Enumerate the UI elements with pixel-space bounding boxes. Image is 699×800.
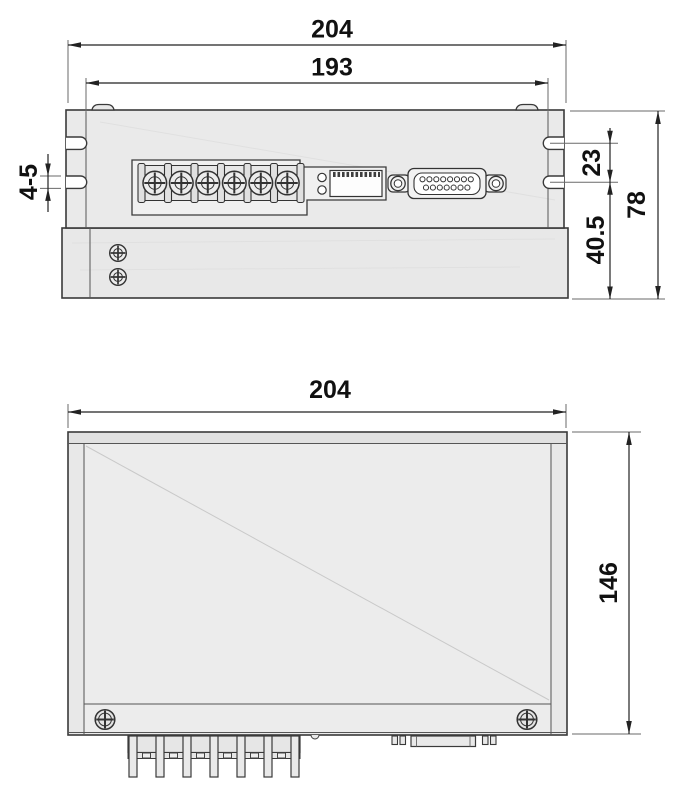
- terminal-foot: [251, 753, 259, 758]
- dim-label-4-5: 4-5: [15, 164, 43, 200]
- mounting-slot-left-lower: [66, 176, 87, 188]
- dim-slot-width: 4-5: [15, 154, 61, 212]
- dip-led-hole: [318, 186, 326, 194]
- dim-label-23: 23: [578, 149, 606, 177]
- dip-led-hole: [318, 173, 326, 181]
- db15-shell-profile: [411, 736, 476, 747]
- terminal-foot: [278, 753, 286, 758]
- terminal-foot: [143, 753, 151, 758]
- dim-mount-width: 193: [86, 54, 548, 113]
- dim-label-193: 193: [311, 54, 353, 82]
- terminal-leg: [264, 736, 272, 777]
- top-view: 204 193 4-5 23: [15, 16, 665, 300]
- terminal-leg: [183, 736, 191, 777]
- top-edge-bump-right: [516, 105, 538, 111]
- db15-jackscrew-right-hole: [492, 180, 500, 188]
- technical-drawing: 204 193 4-5 23: [0, 0, 699, 800]
- top-edge-bump-left: [92, 105, 114, 111]
- front-view-top-strip: [69, 433, 566, 443]
- db15-tab: [392, 736, 398, 745]
- terminal-leg: [129, 736, 137, 777]
- dim-overall-width-front: 204: [68, 376, 566, 428]
- dim-label-146: 146: [595, 562, 623, 604]
- dim-label-204-top: 204: [311, 16, 353, 44]
- dim-overall-height: 78: [623, 111, 661, 299]
- front-view-panel: [85, 444, 550, 734]
- dim-label-78: 78: [623, 191, 651, 219]
- dim-overall-height-front: 146: [572, 432, 641, 734]
- dim-label-40-5: 40.5: [582, 216, 610, 265]
- terminal-leg: [291, 736, 299, 777]
- dimension-drawing-page: 204 193 4-5 23: [0, 0, 699, 800]
- db15-bottom-profile: [392, 736, 496, 747]
- dim-label-204-front: 204: [309, 376, 351, 404]
- front-view: 204 146: [68, 376, 641, 777]
- db15-tab: [491, 736, 497, 745]
- bottom-edge-notch: [311, 735, 319, 739]
- mounting-slot-left-upper: [66, 137, 87, 149]
- terminal-leg: [210, 736, 218, 777]
- terminal-leg: [156, 736, 164, 777]
- terminal-foot: [224, 753, 232, 758]
- terminal-foot: [170, 753, 178, 758]
- top-view-front-band: [62, 228, 568, 298]
- db15-tab: [400, 736, 406, 745]
- db15-dshell: [414, 173, 480, 195]
- terminal-block-bottom-profile: [128, 736, 300, 777]
- db15-tab: [483, 736, 489, 745]
- db15-jackscrew-left-hole: [394, 180, 402, 188]
- terminal-leg: [237, 736, 245, 777]
- terminal-foot: [197, 753, 205, 758]
- terminal-block: [138, 164, 304, 203]
